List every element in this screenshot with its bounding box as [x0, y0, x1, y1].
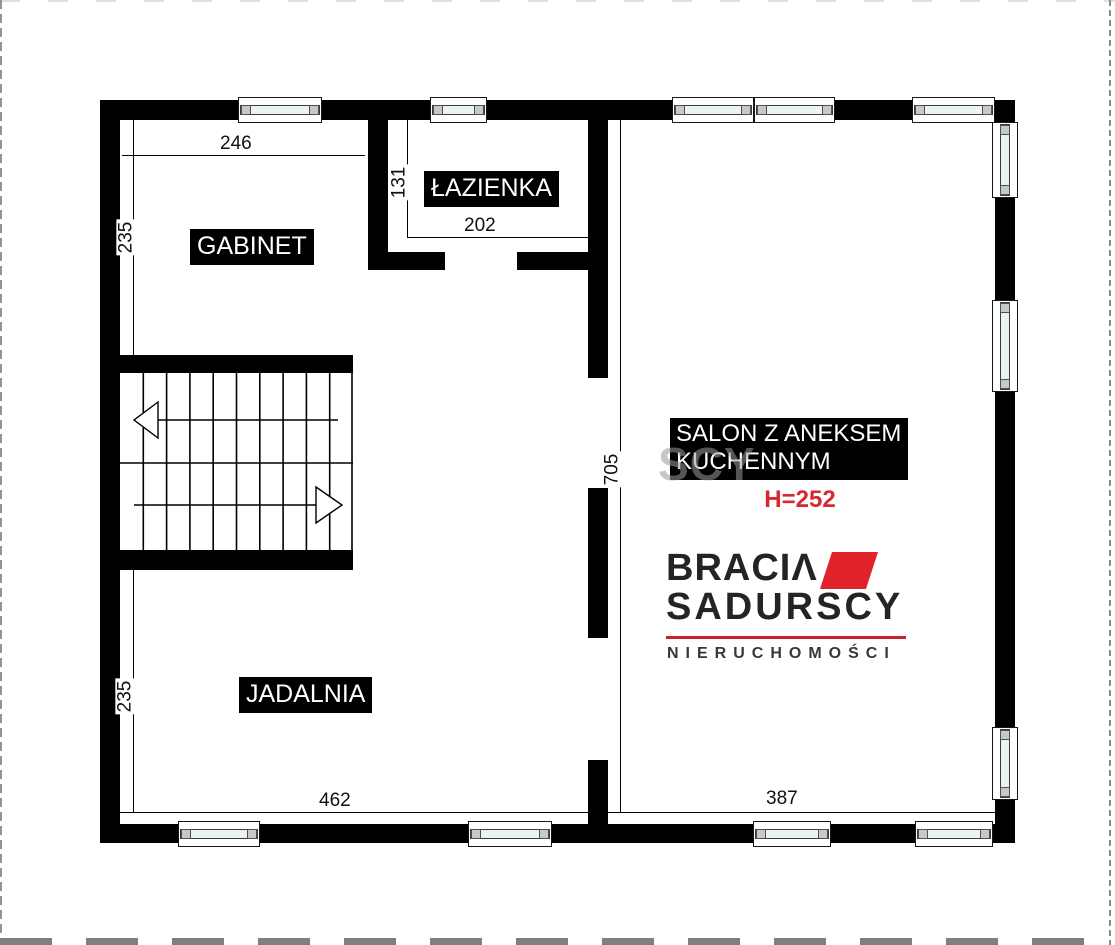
- dim-line-246: [122, 155, 365, 156]
- window-cap: [822, 105, 832, 115]
- dim-705: 705: [602, 452, 621, 488]
- wall-right-2: [995, 392, 1015, 727]
- logo-red-parallelogram-icon: [820, 552, 878, 589]
- window-glass: [1000, 302, 1010, 390]
- wall-middle-3: [588, 760, 608, 824]
- wall-bottom-4: [831, 824, 915, 843]
- dim-387: 387: [764, 789, 800, 808]
- window-right-3: [992, 727, 1018, 800]
- page-border-top-dashed: [0, 0, 1115, 2]
- wall-middle-2: [588, 488, 608, 638]
- window-bottom-3: [753, 821, 831, 847]
- window-cap: [1000, 379, 1010, 389]
- window-cap: [471, 829, 481, 839]
- window-cap: [918, 829, 928, 839]
- wall-right-3: [995, 800, 1015, 843]
- wall-middle-1: [588, 120, 608, 378]
- dim-235-jadalnia: 235: [115, 679, 134, 715]
- wall-bathroom-bottom-right: [517, 252, 588, 270]
- window-cap: [980, 829, 990, 839]
- dim-202: 202: [462, 216, 498, 235]
- wall-top-1: [100, 100, 238, 120]
- wall-right-1: [995, 198, 1015, 300]
- dim-246: 246: [218, 134, 254, 153]
- window-cap: [757, 105, 767, 115]
- room-label-lazienka: ŁAZIENKA: [424, 171, 559, 207]
- wall-stairwell-bottom: [100, 550, 353, 570]
- wall-top-3: [487, 100, 672, 120]
- window-cap: [756, 829, 766, 839]
- window-cap: [1000, 303, 1010, 313]
- logo-bracia-text: BRACIΛ: [666, 549, 818, 587]
- window-cap: [247, 829, 257, 839]
- wall-bottom-3: [552, 824, 753, 843]
- page-border-right-dashed: [1109, 0, 1111, 945]
- window-top-salon-right: [754, 97, 835, 123]
- window-cap: [1000, 185, 1010, 195]
- window-cap: [181, 829, 191, 839]
- watermark-text-fragment: SCY: [658, 441, 756, 487]
- room-label-gabinet: GABINET: [190, 229, 314, 265]
- dim-235-gabinet: 235: [116, 220, 135, 256]
- stairs-down-arrow: [134, 487, 342, 523]
- window-cap: [818, 829, 828, 839]
- room-label-jadalnia: JADALNIA: [239, 677, 372, 713]
- dim-line-202: [407, 237, 588, 238]
- window-right-1: [992, 122, 1018, 198]
- logo-red-rule: [666, 636, 906, 639]
- window-cap: [1000, 125, 1010, 135]
- dim-131: 131: [389, 165, 408, 201]
- window-glass: [470, 829, 550, 839]
- window-top-salon-left: [672, 97, 754, 123]
- window-bottom-2: [468, 821, 552, 847]
- window-cap: [982, 105, 992, 115]
- window-cap: [309, 105, 319, 115]
- wall-bathroom-bottom-left: [368, 252, 445, 270]
- window-cap: [1000, 787, 1010, 797]
- page-border-left-dashed: [0, 0, 2, 945]
- window-bottom-1: [178, 821, 260, 847]
- wall-bathroom-left: [368, 120, 388, 253]
- window-cap: [241, 105, 251, 115]
- window-cap: [675, 105, 685, 115]
- wall-corner-top-right: [995, 100, 1015, 122]
- staircase: [120, 373, 353, 550]
- page-border-bottom-dashed: [0, 938, 1115, 945]
- wall-bottom-2: [260, 824, 468, 843]
- window-top-bathroom: [430, 97, 487, 123]
- wall-top-4: [835, 100, 912, 120]
- dim-462: 462: [317, 791, 353, 810]
- window-cap: [1000, 730, 1010, 740]
- window-cap: [433, 105, 443, 115]
- wall-top-2: [322, 100, 430, 120]
- window-right-2: [992, 300, 1018, 392]
- window-bottom-4: [915, 821, 993, 847]
- wall-left: [100, 100, 120, 843]
- wall-bottom-1: [100, 824, 178, 843]
- logo-sadurscy-text: SADURSCY: [666, 588, 903, 626]
- window-top-gabinet: [238, 97, 322, 123]
- wall-stairwell-top: [100, 355, 353, 373]
- window-cap: [741, 105, 751, 115]
- floor-plan-canvas: 246 235 131 202 705 235 462 387 GABINET …: [0, 0, 1115, 945]
- window-top-corner: [912, 97, 995, 123]
- window-cap: [474, 105, 484, 115]
- logo-nieruchomosci-text: NIERUCHOMOŚCI: [667, 646, 896, 662]
- ceiling-height-note: H=252: [752, 486, 848, 514]
- window-cap: [915, 105, 925, 115]
- dim-line-bottom: [120, 812, 995, 813]
- window-cap: [539, 829, 549, 839]
- window-glass: [240, 105, 320, 115]
